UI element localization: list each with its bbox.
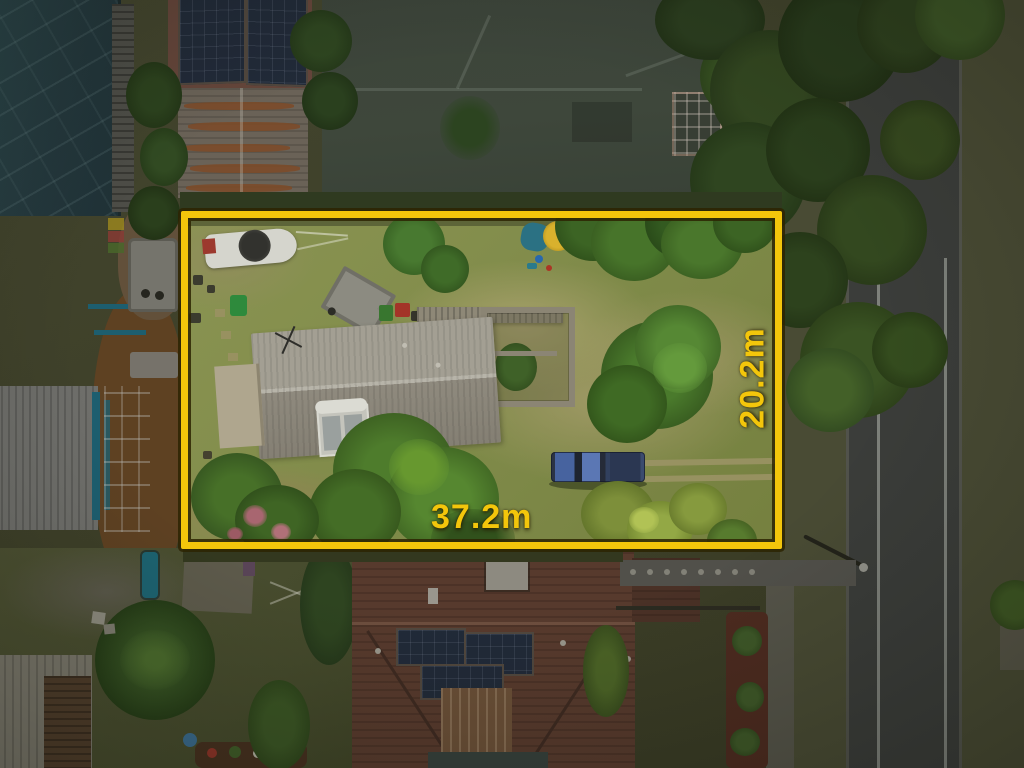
concrete-blocks	[130, 352, 178, 378]
paver-driveway	[620, 560, 856, 586]
shed-brown-slats	[44, 676, 91, 768]
aerial-photo: 37.2m 20.2m	[0, 0, 1024, 768]
rusted-shed-roof	[178, 88, 308, 198]
yellow-crate	[108, 218, 124, 230]
scaffolding	[104, 386, 150, 532]
depth-dimension-label: 20.2m	[734, 327, 773, 428]
palm-tree	[120, 630, 190, 690]
neighbor-green-metal-roof-house	[322, 0, 714, 196]
tree	[880, 100, 960, 180]
tree	[248, 680, 310, 768]
street-tree	[872, 312, 948, 388]
fence-line	[616, 606, 760, 610]
footpath	[1000, 626, 1024, 670]
roof-vent	[375, 648, 381, 654]
wheelie-bin	[243, 562, 255, 576]
tree	[128, 186, 180, 240]
teal-beam	[92, 392, 100, 520]
street-tree	[786, 348, 874, 432]
garden-bed-red-mulch	[726, 612, 768, 768]
chimney	[428, 588, 438, 604]
tree	[300, 545, 358, 665]
tree	[126, 62, 182, 128]
red-crate	[108, 231, 124, 242]
neighbor-tarp-roof	[0, 0, 121, 216]
tree	[440, 96, 500, 160]
tree	[302, 72, 358, 130]
tree	[140, 128, 188, 186]
frontage-dimension-label: 37.2m	[431, 498, 532, 537]
tree	[290, 10, 352, 72]
concrete-path	[766, 586, 794, 768]
teal-vehicle	[142, 552, 158, 598]
white-panel	[91, 611, 106, 625]
construction-metal-roof	[0, 386, 98, 530]
teal-beam	[94, 330, 146, 335]
roof-edge-strip	[428, 752, 548, 768]
palm-fronds	[583, 625, 629, 717]
caravan-trailer	[128, 238, 178, 312]
solar-panel-array	[396, 628, 466, 666]
kiddie-pool	[183, 733, 197, 747]
green-crate	[108, 243, 124, 253]
roof-vent	[560, 640, 566, 646]
white-panel	[104, 623, 116, 634]
fence-shadow-strip	[183, 548, 623, 562]
solar-panel-array	[178, 0, 246, 85]
street-light	[859, 563, 868, 572]
